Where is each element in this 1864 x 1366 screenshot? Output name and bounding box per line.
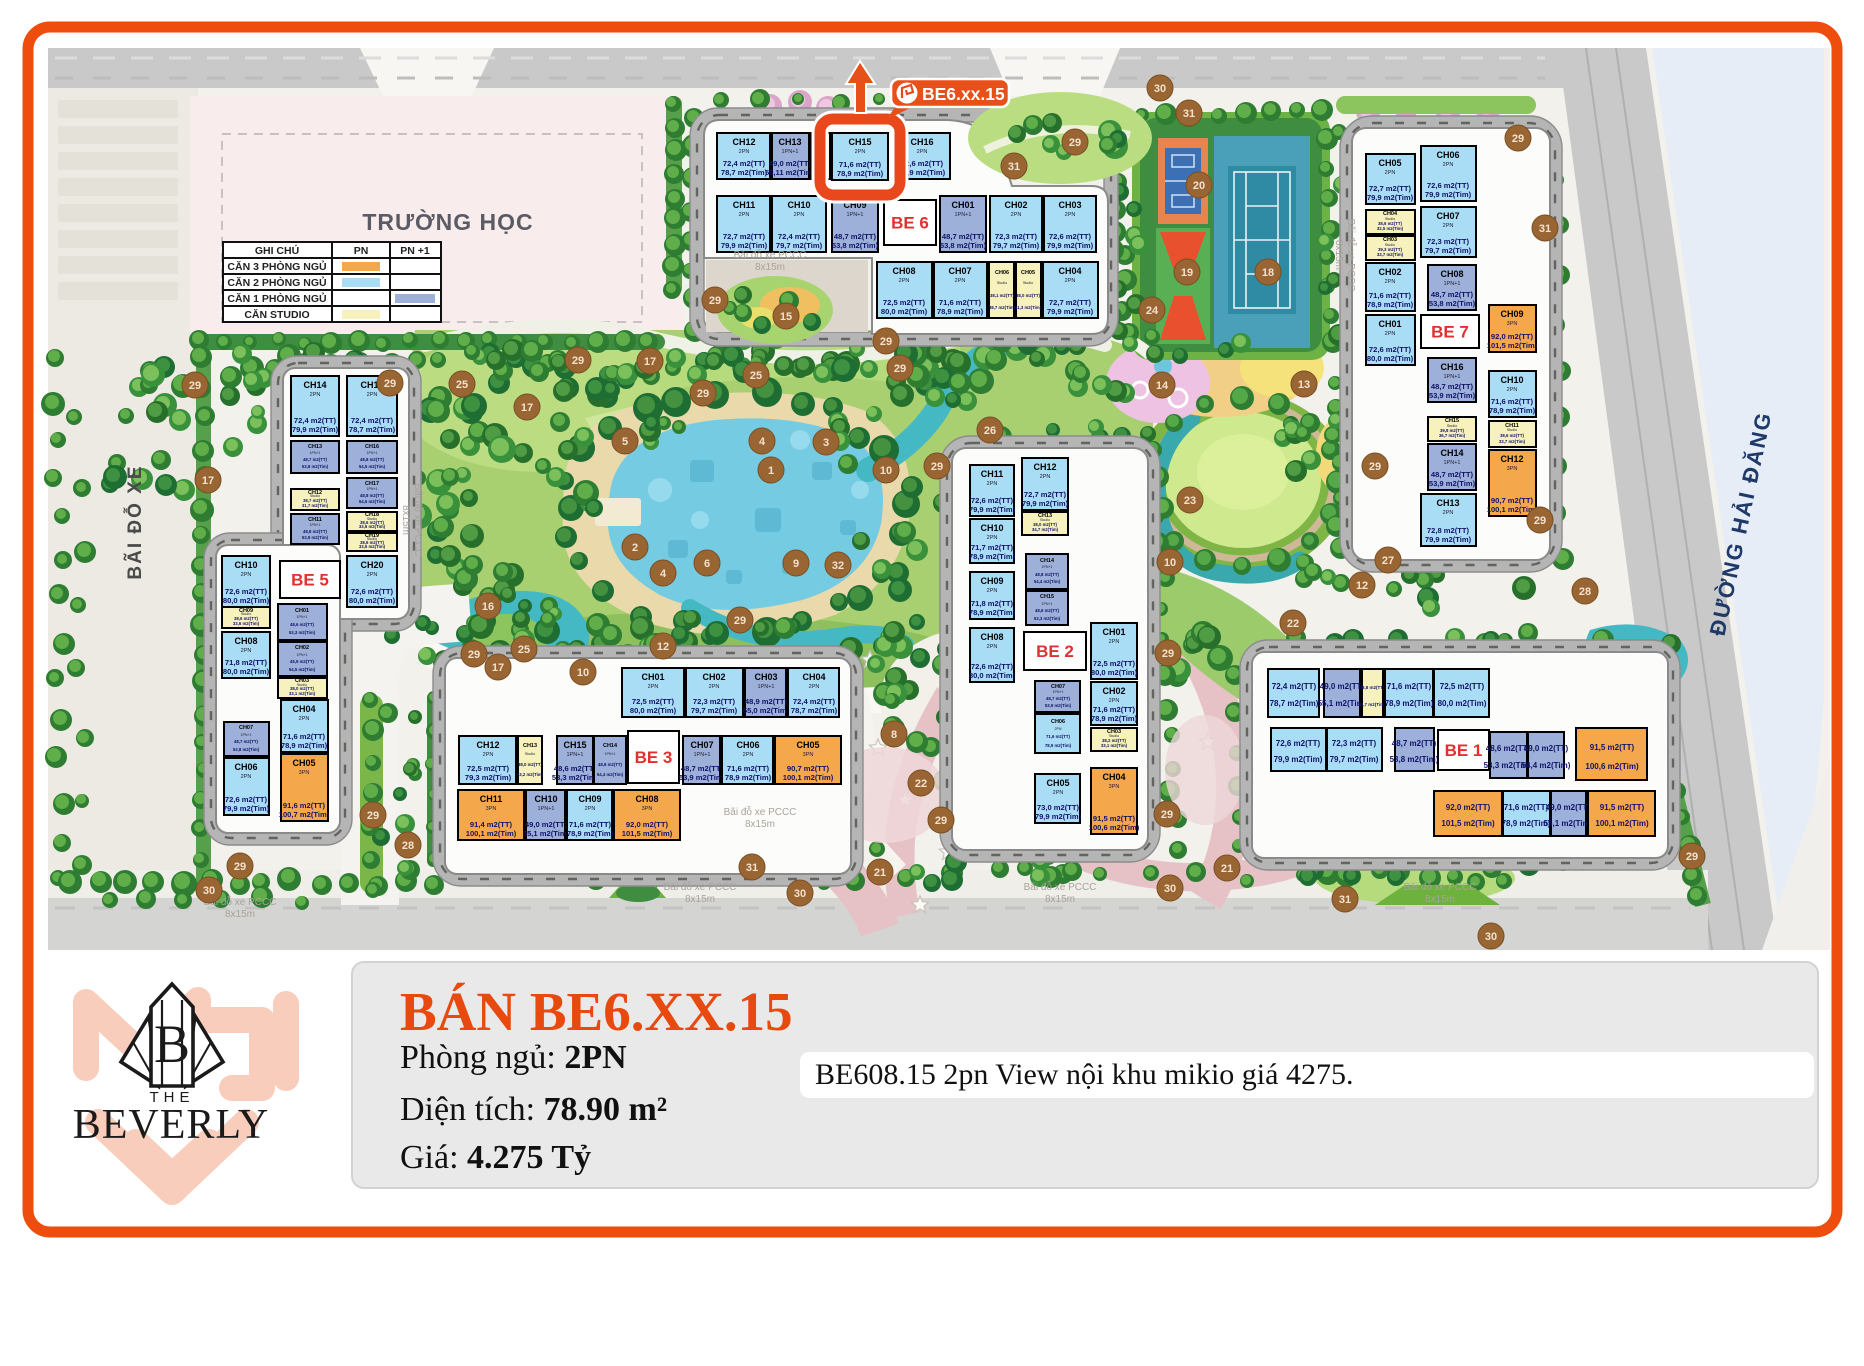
svg-text:49,0 m2(TT): 49,0 m2(TT) [1320, 682, 1365, 691]
svg-text:2PN: 2PN [1011, 212, 1022, 218]
svg-text:72,5 m2(TT): 72,5 m2(TT) [1440, 682, 1485, 691]
svg-text:1PN+1: 1PN+1 [240, 733, 251, 737]
svg-text:1PN+1: 1PN+1 [604, 752, 615, 756]
svg-text:10: 10 [577, 667, 589, 679]
svg-text:79,9 m2(Tim): 79,9 m2(Tim) [223, 804, 270, 813]
svg-text:48,8 m2(TT): 48,8 m2(TT) [598, 762, 622, 767]
svg-text:2PN: 2PN [739, 149, 750, 155]
svg-text:CH16: CH16 [1440, 362, 1463, 372]
svg-text:3PN: 3PN [803, 752, 814, 758]
svg-text:53,8 m2(Tim): 53,8 m2(Tim) [1390, 755, 1439, 764]
svg-text:79,9 m2(Tim): 79,9 m2(Tim) [1022, 499, 1069, 508]
svg-text:72,6 m2(TT): 72,6 m2(TT) [1049, 232, 1092, 241]
svg-text:31: 31 [746, 862, 758, 874]
svg-text:2PN: 2PN [899, 278, 910, 284]
svg-text:2PN: 2PN [241, 648, 252, 654]
svg-text:4: 4 [660, 568, 667, 580]
svg-text:23: 23 [1184, 495, 1196, 507]
svg-text:34,7 m2(Tim): 34,7 m2(Tim) [1032, 527, 1059, 532]
svg-text:2PN: 2PN [1443, 223, 1454, 229]
svg-text:1PN+1: 1PN+1 [1444, 281, 1461, 287]
svg-text:36,7 m2(Tim): 36,7 m2(Tim) [1439, 433, 1466, 438]
svg-text:2PN: 2PN [241, 774, 252, 780]
svg-text:8x15m: 8x15m [400, 505, 411, 535]
svg-text:CH15: CH15 [563, 740, 586, 750]
svg-text:31: 31 [1008, 161, 1020, 173]
svg-text:29: 29 [709, 295, 721, 307]
svg-text:53,9 m2(Tim): 53,9 m2(Tim) [302, 535, 329, 540]
svg-text:3PN: 3PN [1109, 784, 1120, 790]
svg-text:33,6 m2(Tim): 33,6 m2(Tim) [359, 524, 386, 529]
svg-text:1PN+1: 1PN+1 [694, 752, 711, 758]
svg-text:91,5 m2(TT): 91,5 m2(TT) [1590, 743, 1635, 752]
svg-text:29: 29 [234, 861, 246, 873]
svg-text:79,9 m2(Tim): 79,9 m2(Tim) [292, 425, 339, 434]
svg-text:10: 10 [1164, 557, 1176, 569]
svg-text:78,9 m2(Tim): 78,9 m2(Tim) [1489, 406, 1536, 415]
svg-text:79,7 m2(Tim): 79,7 m2(Tim) [691, 706, 738, 715]
svg-text:CH12: CH12 [1500, 454, 1523, 464]
svg-text:Bãi đỗ xe PCCC: Bãi đỗ xe PCCC [1345, 219, 1358, 292]
svg-text:2PN: 2PN [1109, 698, 1120, 704]
svg-text:48,7 m2(TT): 48,7 m2(TT) [942, 232, 985, 241]
svg-text:CH01: CH01 [1378, 319, 1401, 329]
svg-text:22: 22 [915, 778, 927, 790]
svg-text:72,6 m2(TT): 72,6 m2(TT) [1276, 739, 1321, 748]
svg-text:80,0 m2(Tim): 80,0 m2(Tim) [881, 307, 928, 316]
svg-text:91,5 m2(TT): 91,5 m2(TT) [1093, 814, 1136, 823]
svg-text:Bãi đỗ xe PCCC: Bãi đỗ xe PCCC [724, 805, 797, 818]
svg-text:33,6 m2(Tim): 33,6 m2(Tim) [359, 544, 386, 549]
svg-text:48,6 m2(TT): 48,6 m2(TT) [554, 764, 597, 773]
svg-text:27: 27 [1382, 555, 1394, 567]
svg-text:CĂN STUDIO: CĂN STUDIO [244, 308, 309, 321]
svg-text:2PN: 2PN [241, 572, 252, 578]
svg-text:48,8 m2(TT): 48,8 m2(TT) [1035, 572, 1059, 577]
svg-text:CH10: CH10 [534, 794, 557, 804]
svg-text:Studio: Studio [1507, 428, 1517, 432]
svg-text:2PN: 2PN [1065, 212, 1076, 218]
svg-text:48,7 m2(TT): 48,7 m2(TT) [834, 232, 877, 241]
svg-text:72,8 m2(TT): 72,8 m2(TT) [1427, 526, 1470, 535]
svg-text:2PN: 2PN [987, 644, 998, 650]
svg-text:2PN: 2PN [1507, 387, 1518, 393]
svg-text:20: 20 [1193, 180, 1205, 192]
svg-text:53,8 m2(Tim): 53,8 m2(Tim) [1429, 299, 1476, 308]
svg-text:CH13: CH13 [778, 137, 801, 147]
svg-text:CH15: CH15 [848, 137, 871, 147]
svg-text:29: 29 [1512, 133, 1524, 145]
svg-text:2PN: 2PN [955, 278, 966, 284]
svg-text:72,6 m2(TT): 72,6 m2(TT) [225, 795, 268, 804]
svg-text:BEVERLY: BEVERLY [73, 1102, 269, 1148]
svg-text:30: 30 [794, 888, 806, 900]
svg-text:30: 30 [1485, 931, 1497, 943]
svg-text:29: 29 [1161, 809, 1173, 821]
svg-text:78,9 m2(Tim): 78,9 m2(Tim) [281, 741, 328, 750]
svg-text:33,7 m2(Tim): 33,7 m2(Tim) [1377, 252, 1404, 257]
svg-text:21: 21 [874, 867, 886, 879]
svg-text:78,7 m2(Tim): 78,7 m2(Tim) [791, 706, 838, 715]
svg-text:2PN: 2PN [1443, 162, 1454, 168]
svg-text:CH10: CH10 [980, 523, 1003, 533]
svg-text:2: 2 [632, 542, 638, 554]
svg-text:72,5 m2(TT): 72,5 m2(TT) [467, 764, 510, 773]
svg-text:80,0 m2(Tim): 80,0 m2(Tim) [969, 671, 1016, 680]
svg-text:2PN: 2PN [1443, 510, 1454, 516]
svg-text:CH06: CH06 [736, 740, 759, 750]
svg-text:53,3 m2(Tim): 53,3 m2(Tim) [289, 630, 316, 635]
svg-text:CH04: CH04 [292, 704, 315, 714]
svg-text:78,9 m2(Tim): 78,9 m2(Tim) [837, 169, 884, 178]
svg-text:29: 29 [734, 615, 746, 627]
svg-text:2PN: 2PN [1385, 331, 1396, 337]
svg-text:BÃI ĐỖ XE: BÃI ĐỖ XE [124, 464, 146, 579]
svg-text:2PN: 2PN [987, 588, 998, 594]
svg-text:1PN+1: 1PN+1 [1041, 602, 1052, 606]
svg-text:92,0 m2(TT): 92,0 m2(TT) [626, 820, 669, 829]
svg-text:79,9 m2(Tim): 79,9 m2(Tim) [1425, 535, 1472, 544]
svg-text:29: 29 [1534, 515, 1546, 527]
svg-text:1PN+1: 1PN+1 [1052, 690, 1063, 694]
svg-text:1: 1 [768, 465, 774, 477]
svg-text:71,6 m2(TT): 71,6 m2(TT) [1093, 705, 1136, 714]
svg-text:CĂN 3 PHÒNG NGỦ: CĂN 3 PHÒNG NGỦ [227, 260, 326, 273]
svg-text:48,7 m2(TT): 48,7 m2(TT) [1431, 382, 1474, 391]
svg-text:79,7 m2(Tim): 79,7 m2(Tim) [993, 241, 1040, 250]
svg-text:71,6 m2(TT): 71,6 m2(TT) [839, 160, 882, 169]
svg-text:34,7 m2(Tim): 34,7 m2(Tim) [1358, 702, 1386, 707]
svg-text:72,6 m2(TT): 72,6 m2(TT) [1427, 181, 1470, 190]
svg-text:1PN+1: 1PN+1 [955, 212, 972, 218]
svg-text:79,9 m2(Tim): 79,9 m2(Tim) [1425, 190, 1472, 199]
svg-text:91,4 m2(TT): 91,4 m2(TT) [470, 820, 513, 829]
svg-text:CH14: CH14 [1040, 558, 1055, 564]
svg-text:80,0 m2(Tim): 80,0 m2(Tim) [1438, 699, 1487, 708]
svg-text:CH08: CH08 [635, 794, 658, 804]
svg-text:1PN+1: 1PN+1 [309, 523, 320, 527]
svg-text:31: 31 [1539, 223, 1551, 235]
svg-text:100,6 m2(Tim): 100,6 m2(Tim) [1585, 762, 1639, 771]
svg-text:BE6.xx.15: BE6.xx.15 [922, 84, 1005, 104]
svg-text:72,6 m2(TT): 72,6 m2(TT) [971, 662, 1014, 671]
svg-text:72,5 m2(TT): 72,5 m2(TT) [1093, 659, 1136, 668]
svg-text:10: 10 [880, 465, 892, 477]
svg-text:79,9 m2(Tim): 79,9 m2(Tim) [721, 241, 768, 250]
svg-text:CH02: CH02 [702, 672, 725, 682]
svg-text:71,6 m2(TT): 71,6 m2(TT) [1491, 397, 1534, 406]
svg-text:29: 29 [894, 363, 906, 375]
svg-text:BE 2: BE 2 [1036, 642, 1074, 661]
svg-text:29: 29 [880, 336, 892, 348]
svg-text:53,9 m2(Tim): 53,9 m2(Tim) [1429, 391, 1476, 400]
svg-text:2PN: 2PN [585, 806, 596, 812]
svg-text:79,9 m2(Tim): 79,9 m2(Tim) [1047, 307, 1094, 316]
svg-text:79,9 m2(Tim): 79,9 m2(Tim) [1047, 241, 1094, 250]
svg-text:29: 29 [1369, 461, 1381, 473]
svg-text:21: 21 [1221, 863, 1233, 875]
svg-text:CĂN 2 PHÒNG NGỦ: CĂN 2 PHÒNG NGỦ [227, 276, 326, 289]
svg-text:71,8 m2(TT): 71,8 m2(TT) [225, 658, 268, 667]
svg-text:29: 29 [697, 388, 709, 400]
svg-text:CH12: CH12 [1033, 462, 1056, 472]
svg-text:PN: PN [354, 245, 369, 257]
svg-text:BE608.15 2pn View nội khu miki: BE608.15 2pn View nội khu mikio giá 4275… [815, 1058, 1353, 1091]
svg-text:71,6 m2(TT): 71,6 m2(TT) [283, 732, 326, 741]
svg-text:3PN: 3PN [299, 770, 310, 776]
svg-text:53,8 m2(Tim): 53,8 m2(Tim) [302, 464, 329, 469]
svg-text:3PN: 3PN [486, 806, 497, 812]
svg-text:CH01: CH01 [1102, 627, 1125, 637]
svg-text:CH10: CH10 [787, 200, 810, 210]
svg-text:1PN+1: 1PN+1 [847, 212, 864, 218]
svg-text:33,1 m2(Tim): 33,1 m2(Tim) [1101, 743, 1128, 748]
svg-text:CH05: CH05 [796, 740, 819, 750]
svg-text:GHI CHÚ: GHI CHÚ [255, 244, 299, 257]
svg-text:71,8 m2(TT): 71,8 m2(TT) [971, 599, 1014, 608]
svg-text:Studio: Studio [1023, 281, 1033, 285]
svg-text:80,0 m2(Tim): 80,0 m2(Tim) [349, 596, 396, 605]
svg-text:8x15m: 8x15m [1425, 894, 1455, 905]
svg-text:90,7 m2(TT): 90,7 m2(TT) [787, 764, 830, 773]
svg-text:CH02: CH02 [1378, 267, 1401, 277]
svg-text:72,7 m2(TT): 72,7 m2(TT) [1049, 298, 1092, 307]
svg-text:72,4 m2(TT): 72,4 m2(TT) [778, 232, 821, 241]
svg-text:48,7 m2(TT): 48,7 m2(TT) [1392, 739, 1437, 748]
svg-text:29: 29 [572, 355, 584, 367]
svg-text:71,7 m2(TT): 71,7 m2(TT) [971, 543, 1014, 552]
svg-text:100,6 m2(Tim): 100,6 m2(Tim) [1089, 823, 1140, 832]
svg-text:72,4 m2(TT): 72,4 m2(TT) [1272, 682, 1317, 691]
svg-text:1PN+1: 1PN+1 [296, 653, 307, 657]
svg-text:CĂN 1 PHÒNG NGỦ: CĂN 1 PHÒNG NGỦ [227, 292, 326, 305]
svg-text:29: 29 [935, 815, 947, 827]
svg-text:2PN: 2PN [1065, 278, 1076, 284]
svg-text:1PN+1: 1PN+1 [296, 615, 307, 619]
svg-text:2PN: 2PN [987, 481, 998, 487]
svg-text:48,7 m2(TT): 48,7 m2(TT) [1431, 470, 1474, 479]
svg-text:78,9 m2(Tim): 78,9 m2(Tim) [567, 829, 614, 838]
svg-text:CH16: CH16 [910, 137, 933, 147]
svg-text:29: 29 [1069, 137, 1081, 149]
svg-text:28: 28 [402, 840, 414, 852]
svg-text:79,7 m2(Tim): 79,7 m2(Tim) [1330, 755, 1379, 764]
svg-text:101,5 m2(Tim): 101,5 m2(Tim) [1487, 341, 1538, 350]
svg-text:12: 12 [657, 641, 669, 653]
svg-text:15: 15 [780, 311, 792, 323]
svg-text:53,3 m2(Tim): 53,3 m2(Tim) [1034, 616, 1061, 621]
svg-text:101,5 m2(Tim): 101,5 m2(Tim) [1441, 819, 1495, 828]
svg-text:55,1 m2(Tim): 55,1 m2(Tim) [523, 829, 570, 838]
svg-text:22: 22 [1287, 618, 1299, 630]
svg-text:72,7 m2(TT): 72,7 m2(TT) [723, 232, 766, 241]
svg-text:CH13: CH13 [523, 743, 537, 749]
svg-text:24: 24 [1146, 305, 1159, 317]
svg-text:Diện tích: 78.90 m²: Diện tích: 78.90 m² [400, 1091, 667, 1128]
svg-text:3PN: 3PN [1507, 466, 1518, 472]
svg-text:25: 25 [456, 379, 468, 391]
svg-text:80,0 m2(Tim): 80,0 m2(Tim) [1091, 668, 1138, 677]
svg-text:CH05: CH05 [1046, 778, 1069, 788]
svg-text:78,9 m2(Tim): 78,9 m2(Tim) [969, 608, 1016, 617]
svg-text:100,1 m2(Tim): 100,1 m2(Tim) [783, 773, 834, 782]
svg-text:33,1 m2(Tim): 33,1 m2(Tim) [289, 691, 316, 696]
svg-text:53,9 m2(Tim): 53,9 m2(Tim) [1429, 479, 1476, 488]
svg-text:1PN+1: 1PN+1 [1444, 374, 1461, 380]
svg-text:CH11: CH11 [480, 794, 503, 804]
svg-text:CH07: CH07 [239, 725, 253, 731]
svg-text:71,6 m2(TT): 71,6 m2(TT) [1504, 803, 1549, 812]
svg-text:1PN+1: 1PN+1 [1444, 460, 1461, 466]
svg-text:79,9 m2(Tim): 79,9 m2(Tim) [1274, 755, 1323, 764]
svg-text:71,6 m2(TT): 71,6 m2(TT) [939, 298, 982, 307]
svg-text:91,6 m2(TT): 91,6 m2(TT) [283, 801, 326, 810]
svg-text:CH05: CH05 [1021, 270, 1035, 276]
svg-text:8: 8 [891, 729, 897, 741]
svg-text:CH04: CH04 [1058, 266, 1081, 276]
svg-text:54,5 m2(Tim): 54,5 m2(Tim) [359, 499, 386, 504]
svg-text:78,9 m2(Tim): 78,9 m2(Tim) [1385, 699, 1434, 708]
svg-text:29: 29 [367, 810, 379, 822]
svg-text:BÁN BE6.XX.15: BÁN BE6.XX.15 [400, 981, 793, 1042]
svg-text:100,1 m2(Tim): 100,1 m2(Tim) [466, 829, 517, 838]
svg-text:3PN: 3PN [1507, 321, 1518, 327]
svg-text:Bãi đỗ xe PCCC: Bãi đỗ xe PCCC [734, 248, 807, 261]
svg-text:CH08: CH08 [1440, 269, 1463, 279]
svg-text:CH10: CH10 [1500, 375, 1523, 385]
svg-text:90,7 m2(TT): 90,7 m2(TT) [1491, 496, 1534, 505]
svg-text:25: 25 [518, 644, 530, 656]
svg-text:72,3 m2(TT): 72,3 m2(TT) [1332, 739, 1377, 748]
svg-text:29: 29 [1162, 648, 1174, 660]
svg-text:Giá: 4.275 Tỷ: Giá: 4.275 Tỷ [400, 1139, 591, 1176]
svg-text:2PN: 2PN [367, 572, 378, 578]
svg-text:48,9 m2(TT): 48,9 m2(TT) [745, 697, 788, 706]
svg-text:8x15m: 8x15m [755, 262, 785, 273]
svg-text:CH14: CH14 [303, 380, 326, 390]
svg-text:3: 3 [823, 437, 829, 449]
svg-text:72,6 m2(TT): 72,6 m2(TT) [351, 587, 394, 596]
svg-text:8x15m: 8x15m [1045, 894, 1075, 905]
svg-text:78,9 m2(Tim): 78,9 m2(Tim) [1091, 714, 1138, 723]
svg-text:2PN: 2PN [648, 684, 659, 690]
svg-text:17: 17 [644, 356, 656, 368]
svg-text:80,0 m2(Tim): 80,0 m2(Tim) [223, 596, 270, 605]
svg-text:33,2 m2(Tim): 33,2 m2(Tim) [517, 772, 544, 777]
svg-text:17: 17 [202, 475, 214, 487]
svg-text:CH01: CH01 [641, 672, 664, 682]
svg-text:CH14: CH14 [1440, 448, 1463, 458]
svg-text:72,4 m2(TT): 72,4 m2(TT) [723, 159, 766, 168]
svg-text:8x15m: 8x15m [745, 819, 775, 830]
svg-text:32,5 m2(Tim): 32,5 m2(Tim) [1377, 226, 1404, 231]
svg-text:71,6 m2(TT): 71,6 m2(TT) [727, 764, 770, 773]
svg-text:30: 30 [1154, 83, 1166, 95]
svg-text:2PN: 2PN [794, 212, 805, 218]
svg-text:1PN+1: 1PN+1 [309, 451, 320, 455]
svg-text:Bãi đỗ xe PCCC: Bãi đỗ xe PCCC [1024, 880, 1097, 893]
svg-text:41,3 m2(Tim): 41,3 m2(Tim) [1015, 305, 1042, 310]
svg-text:78,9 m2(Tim): 78,9 m2(Tim) [937, 307, 984, 316]
svg-text:CH03: CH03 [1058, 200, 1081, 210]
svg-text:17: 17 [492, 662, 504, 674]
svg-text:38,0 m2(TT): 38,0 m2(TT) [518, 762, 542, 767]
svg-text:92,0 m2(TT): 92,0 m2(TT) [1446, 803, 1491, 812]
svg-text:2PN: 2PN [1385, 279, 1396, 285]
svg-text:1PN+1: 1PN+1 [538, 806, 555, 812]
svg-text:72,6 m2(TT): 72,6 m2(TT) [1369, 345, 1412, 354]
svg-text:CH06: CH06 [1051, 719, 1065, 725]
svg-text:72,3 m2(TT): 72,3 m2(TT) [995, 232, 1038, 241]
svg-text:CH08: CH08 [234, 636, 257, 646]
svg-text:BE 5: BE 5 [291, 571, 329, 590]
svg-text:53,9 m2(Tim): 53,9 m2(Tim) [679, 773, 726, 782]
svg-text:CH06: CH06 [234, 762, 257, 772]
svg-text:CH12: CH12 [476, 740, 499, 750]
svg-text:32: 32 [832, 560, 844, 572]
svg-text:78,7 m2(Tim): 78,7 m2(Tim) [349, 425, 396, 434]
svg-text:79,9 m2(Tim): 79,9 m2(Tim) [969, 505, 1016, 514]
svg-text:71,6 m2(TT): 71,6 m2(TT) [1387, 682, 1432, 691]
svg-text:BE 3: BE 3 [635, 748, 673, 767]
svg-text:100,1 m2(Tim): 100,1 m2(Tim) [1595, 819, 1649, 828]
svg-text:71,6 m2(TT): 71,6 m2(TT) [569, 820, 612, 829]
svg-text:CH12: CH12 [732, 137, 755, 147]
svg-text:72,4 m2(TT): 72,4 m2(TT) [793, 697, 836, 706]
svg-text:48,8 m2(TT): 48,8 m2(TT) [360, 457, 384, 462]
svg-text:54,4 m2(Tim): 54,4 m2(Tim) [1034, 579, 1061, 584]
svg-text:1PN+1: 1PN+1 [366, 487, 377, 491]
svg-text:91,5 m2(TT): 91,5 m2(TT) [1600, 803, 1645, 812]
svg-text:78,9 m2(Tim): 78,9 m2(Tim) [969, 552, 1016, 561]
svg-text:CH04: CH04 [1102, 772, 1125, 782]
svg-text:79,9 m2(Tim): 79,9 m2(Tim) [1035, 812, 1082, 821]
svg-text:38,7 m2(Tim): 38,7 m2(Tim) [989, 305, 1016, 310]
svg-text:2PN: 2PN [1053, 790, 1064, 796]
svg-text:B: B [154, 1014, 190, 1074]
svg-text:26: 26 [984, 425, 996, 437]
svg-text:31,7 m2(Tim): 31,7 m2(Tim) [302, 503, 329, 508]
svg-text:Bãi đỗ xe PCCC: Bãi đỗ xe PCCC [664, 880, 737, 893]
svg-text:2PN: 2PN [310, 392, 321, 398]
svg-text:CH20: CH20 [360, 560, 383, 570]
svg-text:CH15: CH15 [1040, 594, 1054, 600]
svg-text:2PN: 2PN [739, 212, 750, 218]
svg-text:2PN: 2PN [1055, 727, 1062, 731]
svg-text:80,0 m2(Tim): 80,0 m2(Tim) [223, 667, 270, 676]
svg-text:CH07: CH07 [1436, 211, 1459, 221]
svg-text:55,1 m2(Tim): 55,1 m2(Tim) [1544, 819, 1593, 828]
svg-text:79,7 m2(Tim): 79,7 m2(Tim) [1425, 246, 1472, 255]
svg-text:CH02: CH02 [295, 645, 309, 651]
svg-text:TRƯỜNG HỌC: TRƯỜNG HỌC [362, 208, 533, 235]
svg-text:CH09: CH09 [578, 794, 601, 804]
svg-text:2PN: 2PN [483, 752, 494, 758]
svg-text:2PN: 2PN [987, 535, 998, 541]
svg-text:5: 5 [622, 436, 628, 448]
svg-text:80,0 m2(Tim): 80,0 m2(Tim) [630, 706, 677, 715]
svg-text:CH09: CH09 [980, 576, 1003, 586]
svg-text:18: 18 [1262, 267, 1274, 279]
svg-text:2PN: 2PN [1385, 170, 1396, 176]
svg-text:80,0 m2(Tim): 80,0 m2(Tim) [1367, 354, 1414, 363]
svg-text:Studio: Studio [525, 752, 535, 756]
svg-text:CH07: CH07 [948, 266, 971, 276]
svg-text:2PN: 2PN [855, 149, 866, 155]
svg-text:2PN: 2PN [743, 752, 754, 758]
svg-text:72,5 m2(TT): 72,5 m2(TT) [632, 697, 675, 706]
svg-text:29: 29 [1686, 851, 1698, 863]
